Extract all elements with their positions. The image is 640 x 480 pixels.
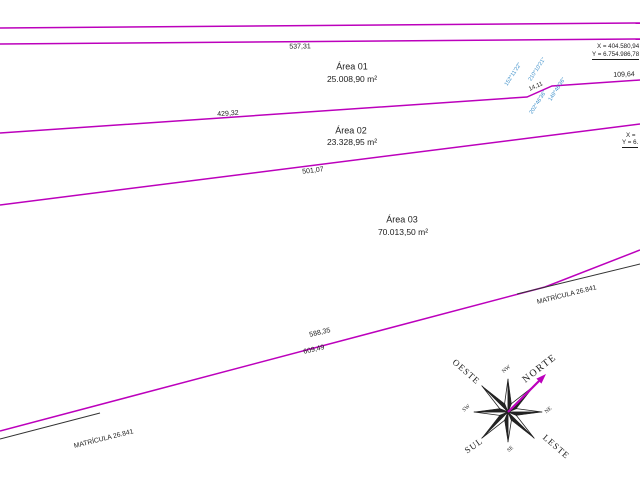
top-boundary-line-2	[0, 39, 640, 44]
survey-plan-drawing: 537,31 429,32 14,11 109,64 501,07 588,35…	[0, 0, 640, 480]
top-boundary-line-1	[0, 23, 640, 28]
area01-value: 25.008,90 m²	[327, 75, 377, 84]
drawing-lines-layer	[0, 0, 640, 480]
area01-title: Área 01	[336, 63, 368, 72]
area03-south-boundary-line	[0, 250, 640, 431]
coordinate-y-label: Y = 6.	[622, 140, 638, 148]
area03-value: 70.013,50 m²	[378, 228, 428, 237]
area03-title: Área 03	[386, 216, 418, 225]
matricula-boundary-line-left	[0, 413, 100, 439]
area02-area03-boundary-line	[0, 124, 640, 205]
coordinate-x-label: X = 404.580,94	[597, 44, 639, 50]
measurement-label: 429,32	[217, 110, 239, 118]
area02-value: 23.328,95 m²	[327, 138, 377, 147]
area01-area02-boundary-line	[0, 80, 640, 133]
area02-title: Área 02	[335, 127, 367, 136]
measurement-label: 109,64	[613, 71, 635, 79]
coordinate-y-label: Y = 6.754.986,78	[592, 52, 639, 60]
measurement-label: 537,31	[289, 43, 311, 50]
